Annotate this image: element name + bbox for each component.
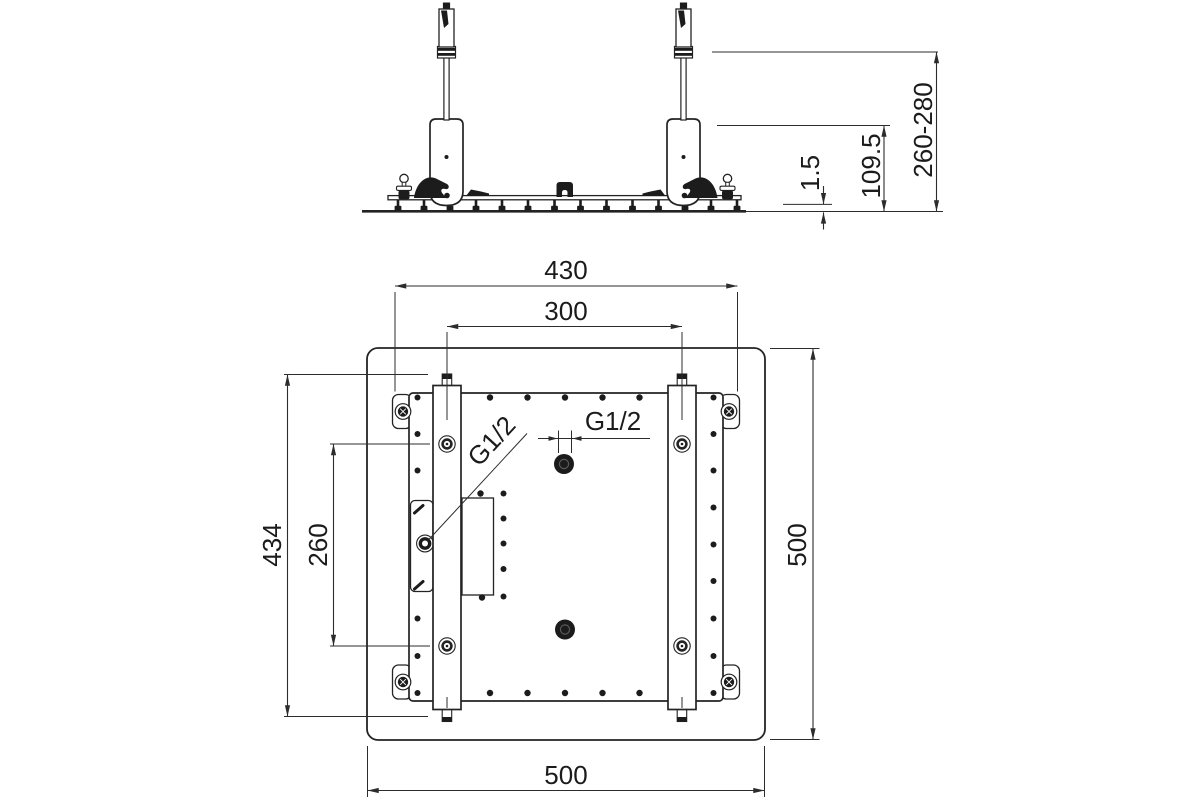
technical-drawing-page: 1.5 109.5 260-280 <box>0 0 1200 800</box>
dim-label-frame-height: 500 <box>782 523 812 566</box>
dim-label-rail-spacing: 300 <box>544 296 587 326</box>
left-riser <box>430 3 463 206</box>
left-rail <box>433 374 461 722</box>
right-rail <box>668 374 696 722</box>
right-end-screw <box>720 174 735 199</box>
right-riser <box>667 3 700 206</box>
lower-inlet-hole <box>555 620 575 640</box>
dim-label-hole-spacing: 260 <box>303 523 333 566</box>
dim-label-plate-height: 434 <box>257 523 287 566</box>
side-elevation-view: 1.5 109.5 260-280 <box>362 3 943 230</box>
dim-label-plate-width: 430 <box>544 255 587 285</box>
side-inlet-plate <box>411 501 434 592</box>
left-end-screw <box>397 174 412 199</box>
dim-label-plate-thickness: 1.5 <box>795 155 825 191</box>
dim-label-height-range: 260-280 <box>908 82 938 177</box>
dim-label-housing-height: 109.5 <box>856 133 886 198</box>
side-view-dimensions: 1.5 109.5 260-280 <box>712 52 943 230</box>
dim-label-frame-width: 500 <box>544 760 587 790</box>
plan-view: G1/2 G1/2 430 300 434 260 <box>257 255 820 797</box>
plate-cutout <box>462 498 494 595</box>
center-clip <box>557 182 574 197</box>
top-inlet-hole <box>554 454 574 474</box>
thread-label-top-inlet: G1/2 <box>585 406 641 436</box>
